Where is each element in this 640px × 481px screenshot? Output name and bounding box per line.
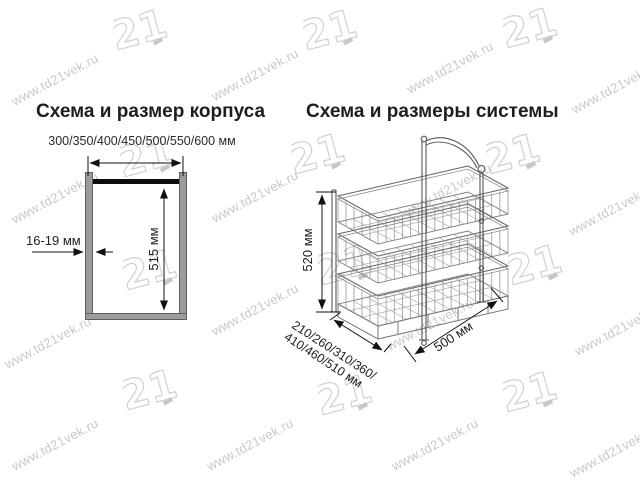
cabinet-inner-height-label: 515 мм xyxy=(146,207,161,291)
cabinet-top-rail xyxy=(93,179,179,184)
watermark-text: www.td21vek.ru xyxy=(569,58,640,116)
cabinet-left-side-panel xyxy=(85,172,93,320)
wire-basket-drawing xyxy=(322,126,534,366)
watermark-text: www.td21vek.ru xyxy=(567,422,640,480)
watermark-text: www.td21vek.ru xyxy=(404,38,496,96)
watermark-21-logo-icon xyxy=(503,365,559,421)
watermark-text: www.td21vek.ru xyxy=(389,415,481,473)
watermark-text: www.td21vek.ru xyxy=(9,415,101,473)
dimension-lines xyxy=(0,0,640,480)
watermark-text: www.td21vek.ru xyxy=(204,415,296,473)
system-height-label: 520 мм xyxy=(300,207,315,293)
cabinet-bottom-panel xyxy=(85,313,187,320)
watermark-21-logo-icon xyxy=(503,1,559,57)
cabinet-diagram-title: Схема и размер корпуса xyxy=(36,101,264,123)
watermark-text: www.td21vek.ru xyxy=(209,167,301,225)
product-dimension-sheet: { "watermark": { "text": "www.td21vek.ru… xyxy=(0,0,640,480)
cabinet-width-options-label: 300/350/400/450/500/550/600 мм xyxy=(22,134,262,148)
watermark-text: www.td21vek.ru xyxy=(572,300,640,358)
watermark-text: www.td21vek.ru xyxy=(566,180,640,238)
watermark-21-logo-icon xyxy=(113,3,169,59)
cabinet-panel-thickness-label: 16-19 мм xyxy=(26,233,81,248)
watermark-text: www.td21vek.ru xyxy=(209,280,301,338)
watermark-21-logo-icon xyxy=(123,363,179,419)
watermark-text: www.td21vek.ru xyxy=(9,50,101,108)
watermark-text: www.td21vek.ru xyxy=(2,313,94,371)
cabinet-right-side-panel xyxy=(179,172,187,320)
watermark-21-logo-icon xyxy=(303,3,359,59)
basket-system-title: Схема и размеры системы xyxy=(306,101,550,123)
watermark-text: www.td21vek.ru xyxy=(209,45,301,103)
